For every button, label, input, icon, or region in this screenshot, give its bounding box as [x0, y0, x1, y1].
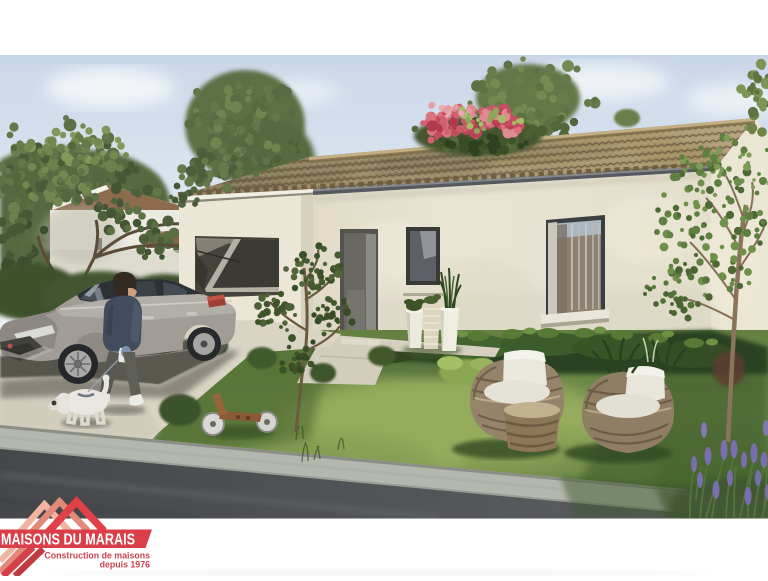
- svg-text:depuis 1976: depuis 1976: [100, 560, 150, 570]
- svg-text:MAISONS DU MARAIS: MAISONS DU MARAIS: [1, 532, 135, 549]
